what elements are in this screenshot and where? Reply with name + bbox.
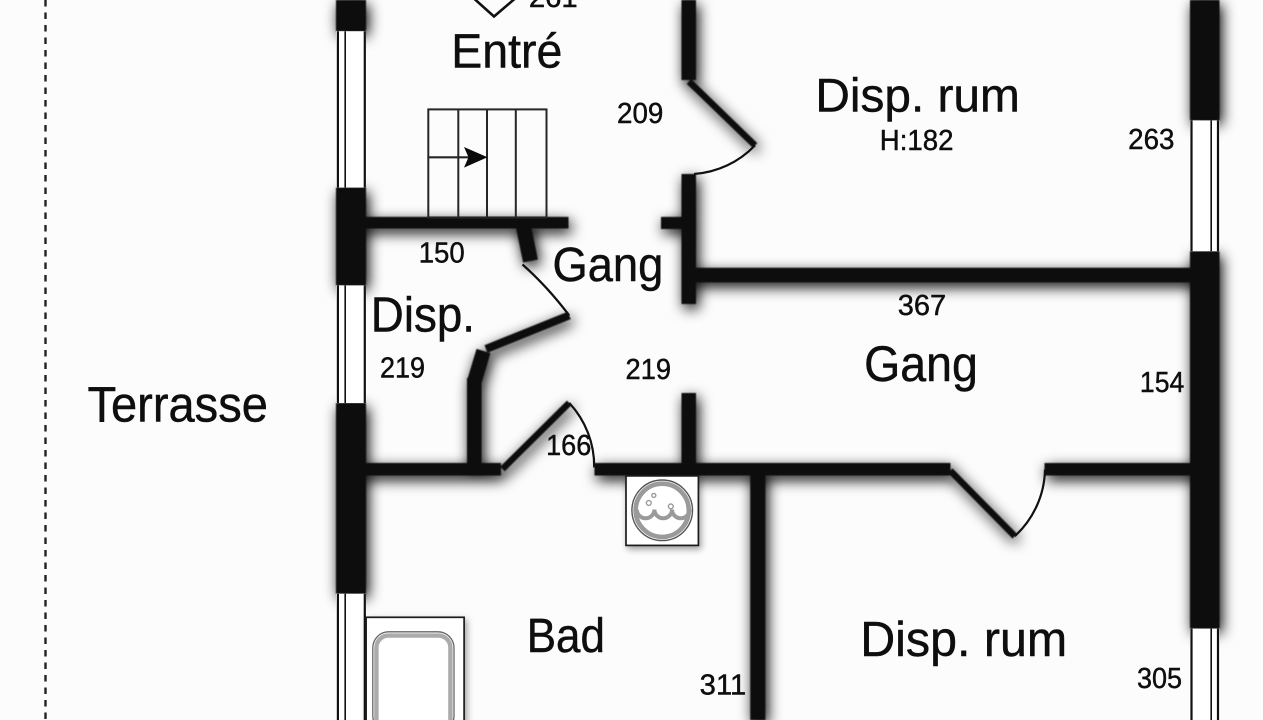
svg-text:261: 261 — [529, 0, 578, 14]
svg-text:367: 367 — [898, 290, 946, 322]
svg-text:311: 311 — [700, 669, 747, 701]
svg-text:Disp. rum: Disp. rum — [860, 613, 1067, 667]
svg-text:219: 219 — [380, 353, 425, 385]
svg-text:263: 263 — [1128, 124, 1174, 156]
svg-text:150: 150 — [419, 237, 465, 269]
svg-text:Gang: Gang — [864, 336, 978, 392]
svg-text:Gang: Gang — [552, 239, 663, 292]
svg-text:305: 305 — [1137, 663, 1182, 695]
svg-text:209: 209 — [617, 98, 663, 130]
svg-text:Disp.: Disp. — [371, 289, 475, 343]
svg-text:154: 154 — [1140, 367, 1184, 399]
svg-text:Entré: Entré — [451, 26, 562, 79]
svg-text:H:182: H:182 — [880, 125, 954, 157]
svg-text:Bad: Bad — [527, 610, 605, 663]
svg-text:Terrasse: Terrasse — [88, 377, 268, 433]
svg-text:166: 166 — [546, 430, 591, 462]
svg-text:219: 219 — [626, 354, 672, 386]
svg-text:Disp. rum: Disp. rum — [815, 70, 1020, 123]
